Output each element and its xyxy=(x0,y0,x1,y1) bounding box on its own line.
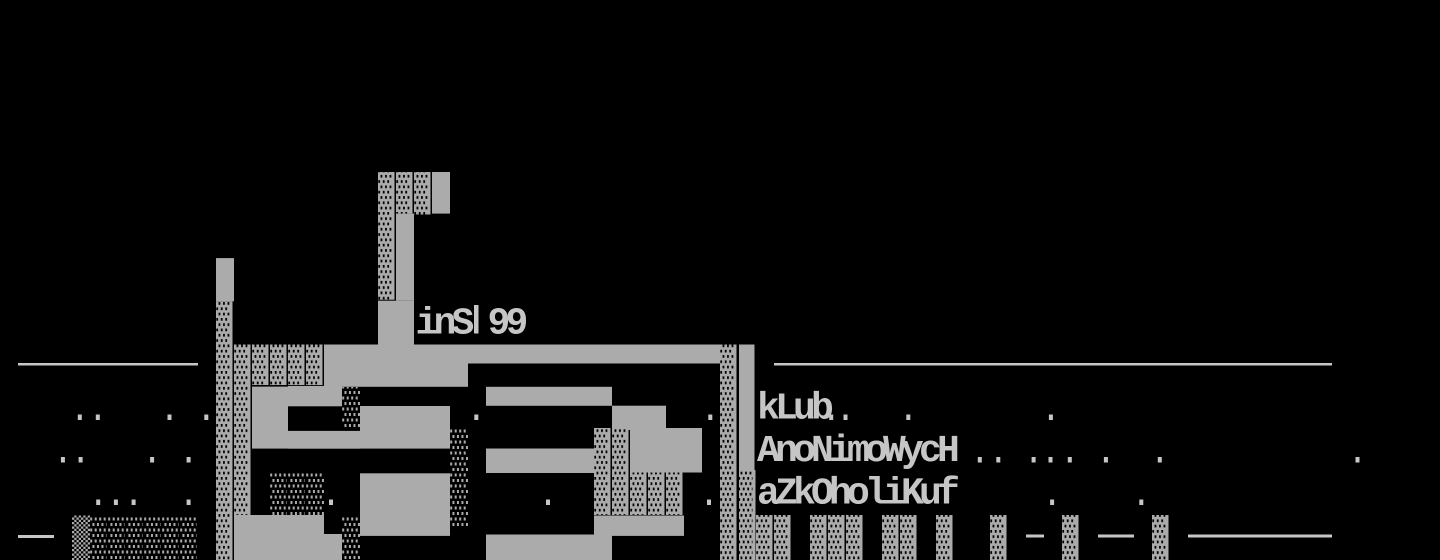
svg-text:kLub: kLub xyxy=(757,388,832,431)
svg-text:99: 99 xyxy=(488,303,527,346)
svg-text:inS: inS xyxy=(416,303,474,346)
svg-text:aZkOholiKuf: aZkOholiKuf xyxy=(757,473,958,516)
svg-text:AnoNimoWycH: AnoNimoWycH xyxy=(757,430,958,473)
